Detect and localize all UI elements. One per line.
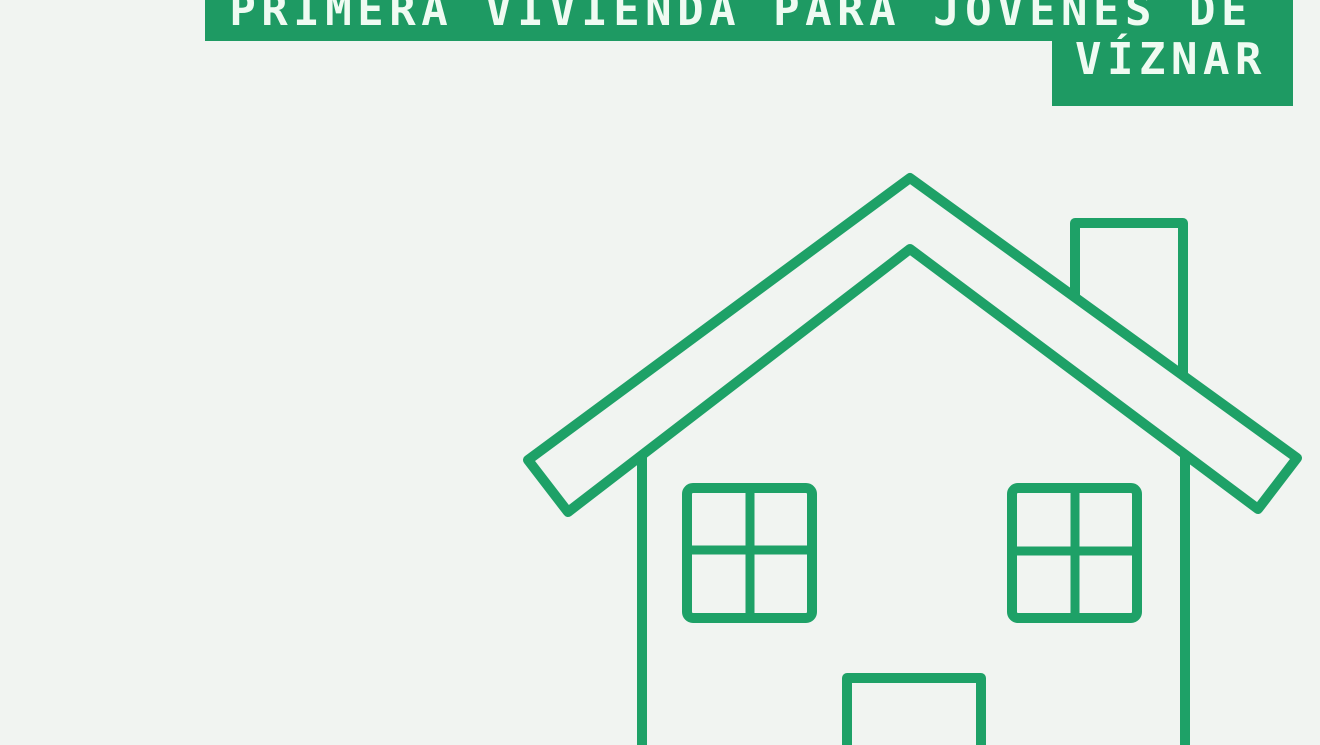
poster-page: { "colors": { "background": "#f1f4f1", "… [0,0,1320,745]
house-outline-icon [0,0,1320,745]
house-outline-group [528,178,1297,745]
house-door [847,678,981,745]
